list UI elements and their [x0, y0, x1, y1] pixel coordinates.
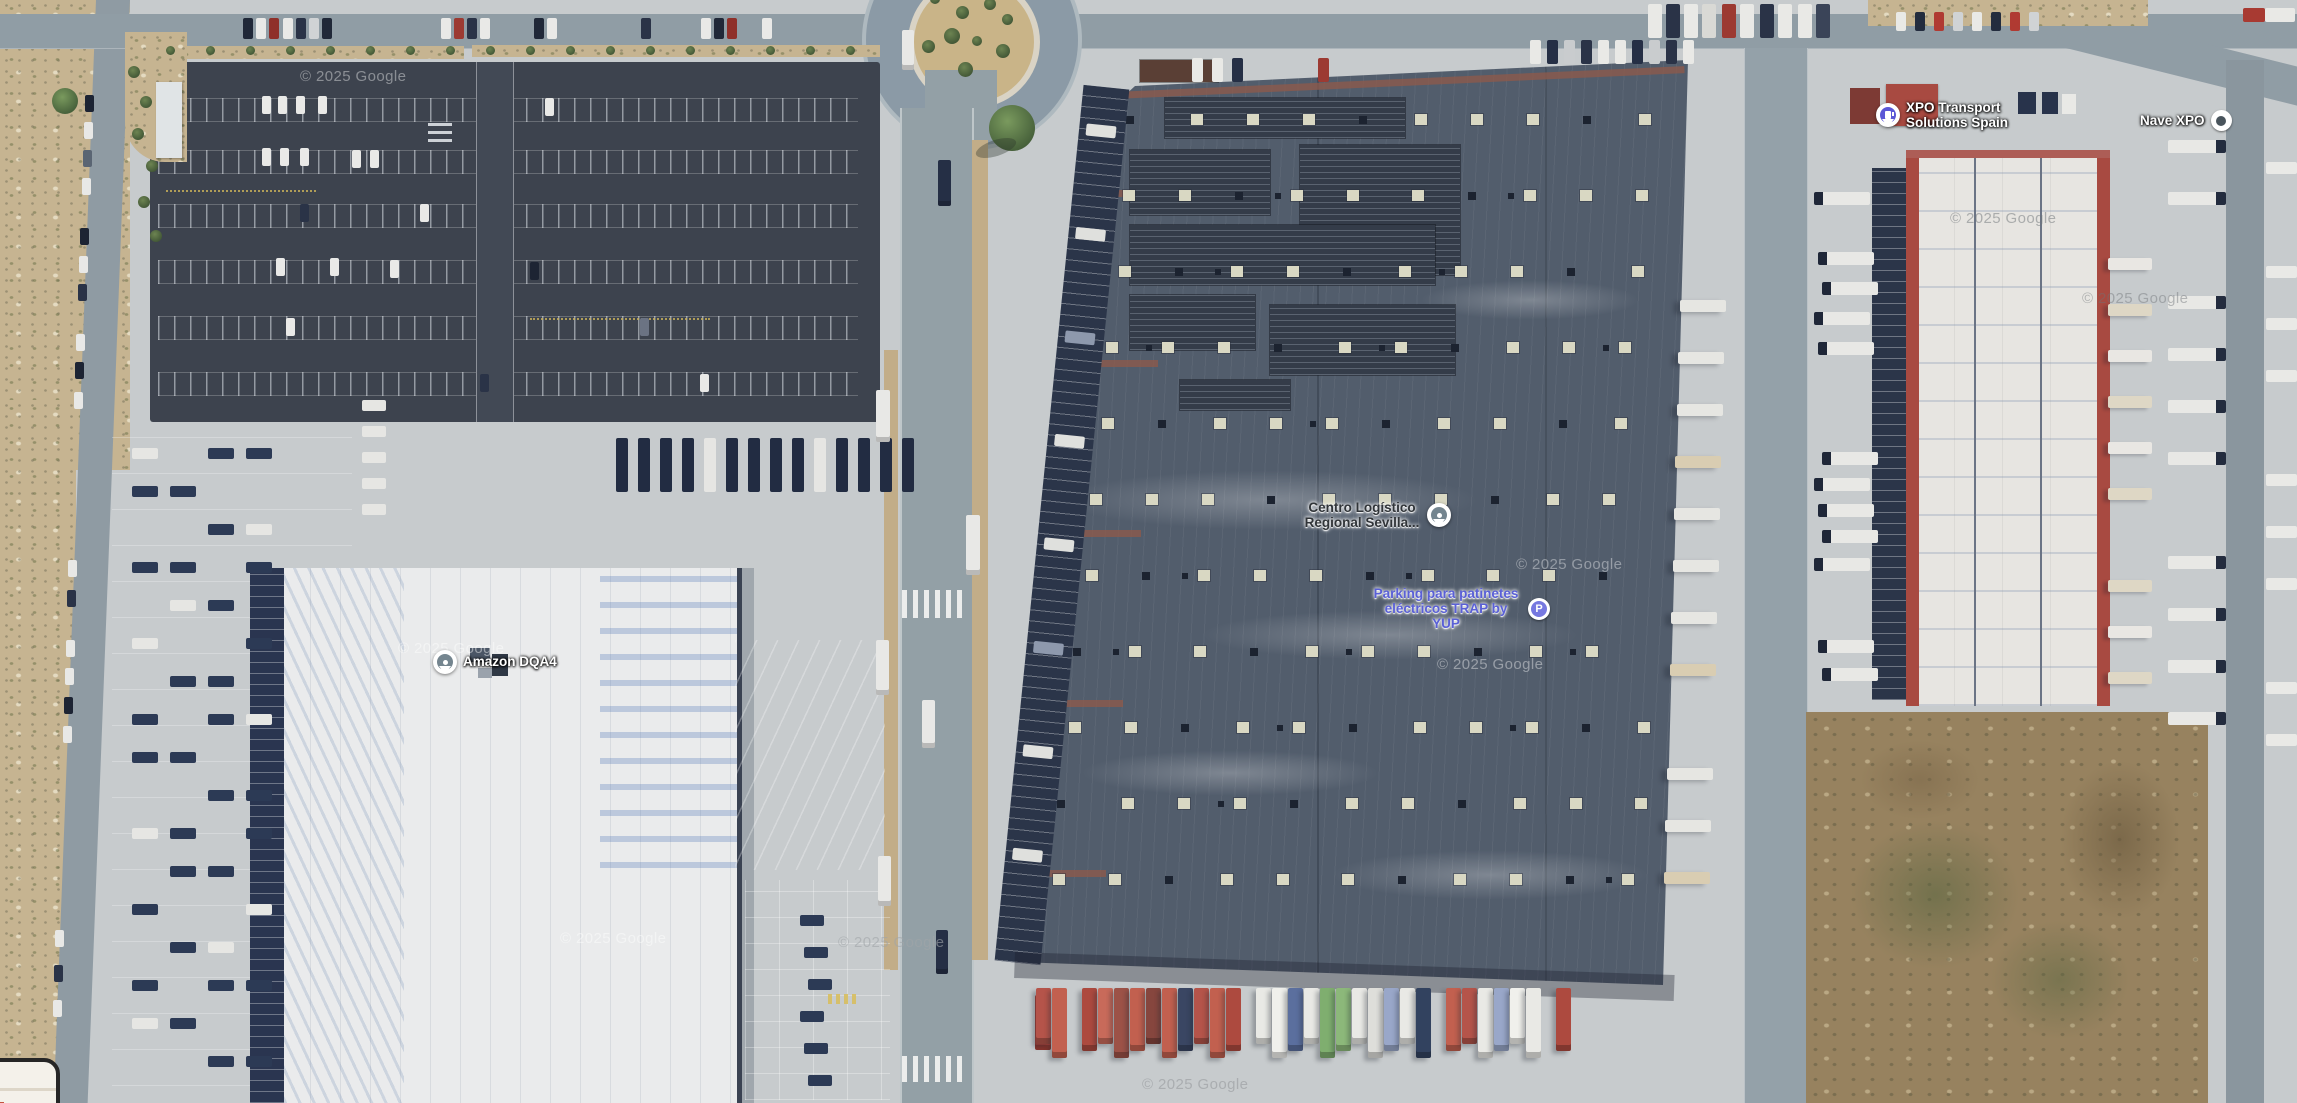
skylight: [1639, 114, 1651, 125]
delivery-van: [362, 478, 386, 489]
skylight: [1524, 190, 1536, 201]
roof-walkway: [1063, 700, 1123, 707]
skylight: [1146, 494, 1158, 505]
canopy-structure: [156, 82, 182, 158]
google-watermark: © 2025 Google: [560, 930, 666, 947]
roof-vent: [1057, 800, 1065, 808]
google-watermark: © 2025 Google: [300, 68, 406, 85]
minimap-inset-card[interactable]: [0, 1058, 60, 1103]
skylight: [1342, 874, 1354, 885]
docked-trailer: [1664, 872, 1710, 884]
truck: [2018, 92, 2036, 114]
parked-truck: [2168, 660, 2226, 673]
skylight: [1191, 114, 1203, 125]
docked-truck: [1818, 252, 1874, 265]
docked-trailer: [1012, 848, 1043, 863]
poi-xpo-transport[interactable]: XPO Transport Solutions Spain: [1876, 100, 2020, 130]
docked-truck: [638, 438, 650, 492]
skylight: [1326, 418, 1338, 429]
skylight: [1635, 798, 1647, 809]
skylight: [1362, 646, 1374, 657]
skylight: [1277, 874, 1289, 885]
roof-vent: [1559, 420, 1567, 428]
docked-trailer: [1670, 664, 1716, 676]
roof-vent: [1451, 344, 1459, 352]
yellow-dotted-line: [530, 318, 710, 320]
skylight: [1102, 418, 1114, 429]
parked-trailer: [1368, 988, 1383, 1058]
parked-trailer: [1114, 988, 1129, 1058]
skylight: [1487, 570, 1499, 581]
docked-truck: [858, 438, 870, 492]
parked-trailer: [1036, 988, 1051, 1044]
docked-truck: [1822, 452, 1878, 465]
docked-truck: [1814, 312, 1870, 325]
docked-trailer: [2108, 350, 2152, 362]
roof-vent: [1158, 420, 1166, 428]
roof-vent: [1218, 801, 1224, 807]
truck: [1035, 995, 1051, 1050]
soil-patch: [2060, 760, 2180, 920]
docked-truck: [660, 438, 672, 492]
skylight: [1438, 418, 1450, 429]
solar-array: [1130, 150, 1270, 215]
parked-trailer: [1352, 988, 1367, 1044]
docked-truck: [726, 438, 738, 492]
docked-truck: [704, 438, 716, 492]
roof-vent: [1235, 192, 1243, 200]
parked-truck: [2266, 474, 2297, 486]
roof-vent: [1458, 800, 1466, 808]
parked-truck: [2266, 266, 2297, 278]
parked-truck: [2266, 318, 2297, 330]
roof-stain: [1080, 750, 1380, 796]
dirt-verge: [152, 46, 464, 59]
skylight: [1069, 722, 1081, 733]
centro-logistico-pin-icon[interactable]: [1427, 503, 1451, 527]
truck: [2062, 94, 2076, 114]
docked-truck: [616, 438, 628, 492]
docked-truck: [770, 438, 782, 492]
docked-trailer: [1665, 820, 1711, 832]
docked-trailer: [1085, 123, 1116, 138]
roof-vent: [1267, 496, 1275, 504]
solar-array: [1180, 380, 1290, 410]
parked-trailer: [1304, 988, 1319, 1044]
roof-vent: [1566, 876, 1574, 884]
parking-lane-divider: [476, 62, 514, 422]
parked-trailer: [1194, 988, 1209, 1044]
roof-vent: [1343, 268, 1351, 276]
skylight: [1563, 342, 1575, 353]
parked-trailer: [1052, 988, 1067, 1058]
docked-trailer: [2108, 626, 2152, 638]
skylight: [1415, 114, 1427, 125]
parked-trailer: [1210, 988, 1225, 1058]
skylight: [1198, 570, 1210, 581]
skylight: [1511, 266, 1523, 277]
amazon-west-dock-band: [250, 568, 284, 1103]
roof-vent: [1366, 572, 1374, 580]
docked-trailer: [1680, 300, 1726, 312]
skylight: [1090, 494, 1102, 505]
docked-trailer: [1075, 227, 1106, 242]
skylight: [1622, 874, 1634, 885]
skylight: [1580, 190, 1592, 201]
docked-trailer: [1022, 744, 1053, 759]
skylight: [1347, 190, 1359, 201]
docked-truck: [814, 438, 826, 492]
poi-label: Parking para patinetes eléctricos TRAP b…: [1370, 586, 1522, 631]
parked-trailer: [1288, 988, 1303, 1051]
skylight: [1123, 190, 1135, 201]
skylight: [1527, 114, 1539, 125]
docked-trailer: [1043, 537, 1074, 552]
skylight: [1418, 646, 1430, 657]
parked-trailer: [1416, 988, 1431, 1058]
poi-label: Nave XPO: [2140, 113, 2205, 128]
docked-truck: [1818, 342, 1874, 355]
skylight: [1414, 722, 1426, 733]
docked-truck: [1814, 478, 1870, 491]
skylight: [1129, 646, 1141, 657]
skylight: [1339, 342, 1351, 353]
skylight: [1632, 266, 1644, 277]
roof-vent: [1570, 649, 1576, 655]
docked-trailer: [1064, 330, 1095, 345]
skylight: [1194, 646, 1206, 657]
skylight: [1306, 646, 1318, 657]
skylight: [1237, 722, 1249, 733]
roof-vent: [1346, 649, 1352, 655]
skylight: [1291, 190, 1303, 201]
docked-truck: [1822, 668, 1878, 681]
vacant-dirt-lot: [1806, 712, 2208, 1103]
poi-label: Centro Logístico Regional Sevilla...: [1303, 500, 1421, 530]
far-right-road: [2226, 60, 2264, 1103]
roof-vent: [1510, 725, 1516, 731]
docked-trailer: [1667, 768, 1713, 780]
yellow-crosswalk: [828, 994, 856, 1004]
roof-vent: [1349, 724, 1357, 732]
roof-seam: [1545, 58, 1547, 988]
parked-trailer: [1256, 988, 1271, 1044]
skylight: [1231, 266, 1243, 277]
skylight: [1202, 494, 1214, 505]
roof-walkway: [1081, 530, 1141, 537]
roof-vent: [1310, 421, 1316, 427]
roof-vent: [1277, 725, 1283, 731]
skylight: [1293, 722, 1305, 733]
skylight: [1619, 342, 1631, 353]
skylight: [1178, 798, 1190, 809]
yellow-dotted-line: [166, 190, 316, 192]
skylight: [1402, 798, 1414, 809]
docked-truck: [1814, 558, 1870, 571]
inset-detail: [0, 1088, 56, 1091]
docked-truck: [682, 438, 694, 492]
docked-trailer: [1033, 641, 1064, 656]
poi-nave-xpo[interactable]: Nave XPO: [2140, 110, 2232, 131]
diagonal-parking-stripes: [735, 640, 885, 870]
grass-verge: [1868, 0, 2148, 26]
xpo-west-dock: [1872, 168, 1906, 700]
parking-lot-area: [150, 62, 880, 422]
skylight: [1514, 798, 1526, 809]
google-watermark: © 2025 Google: [2082, 290, 2188, 307]
skylight: [1086, 570, 1098, 581]
parked-truck: [2168, 348, 2226, 361]
roof-vent: [1290, 800, 1298, 808]
roof-vent: [1599, 572, 1607, 580]
parked-trailer: [1336, 988, 1351, 1051]
skylight: [1303, 114, 1315, 125]
skylight: [1455, 266, 1467, 277]
roof-vent: [1146, 345, 1152, 351]
google-watermark: © 2025 Google: [1950, 210, 2056, 227]
roof-vent: [1165, 876, 1173, 884]
parked-trailer: [1510, 988, 1525, 1044]
solar-array: [1270, 305, 1455, 375]
skylight: [1494, 418, 1506, 429]
skylight: [1399, 266, 1411, 277]
skylight: [1270, 418, 1282, 429]
roof-vent: [1142, 572, 1150, 580]
roof-vent: [1182, 573, 1188, 579]
skylight: [1125, 722, 1137, 733]
skylight: [1510, 874, 1522, 885]
google-watermark: © 2025 Google: [1437, 656, 1543, 673]
docked-truck: [1822, 530, 1878, 543]
skylight: [1179, 190, 1191, 201]
skylight: [1106, 342, 1118, 353]
poi-amazon-dqa4[interactable]: Amazon DQA4: [433, 650, 557, 674]
parked-trailer: [1494, 988, 1509, 1051]
roof-slope-shading: [284, 568, 404, 1103]
delivery-van: [362, 504, 386, 515]
parked-trailer: [1082, 988, 1097, 1051]
skylight: [1221, 874, 1233, 885]
skylight: [1615, 418, 1627, 429]
poi-parking-patinetes[interactable]: Parking para patinetes eléctricos TRAP b…: [1370, 586, 1550, 631]
parked-truck: [2266, 162, 2297, 174]
roof-vent: [1175, 268, 1183, 276]
docked-trailer: [1677, 404, 1723, 416]
crosswalk: [428, 118, 452, 142]
roof-vent: [1439, 269, 1445, 275]
skylight: [1526, 722, 1538, 733]
parked-trailer: [1162, 988, 1177, 1058]
roof-panel-stripes: [600, 568, 737, 868]
xpo-transport-pin-icon[interactable]: [1876, 103, 1900, 127]
tree: [52, 88, 78, 114]
roof-vent: [1567, 268, 1575, 276]
roof-vent: [1274, 344, 1282, 352]
parking-icon[interactable]: P: [1528, 598, 1550, 620]
parked-truck: [2266, 682, 2297, 694]
parked-trailer: [1462, 988, 1477, 1044]
truck: [2042, 92, 2058, 114]
docked-trailer: [2108, 580, 2152, 592]
poi-label: Amazon DQA4: [463, 654, 557, 669]
docked-truck: [748, 438, 760, 492]
parked-trailer: [1226, 988, 1241, 1051]
google-watermark: © 2025 Google: [838, 934, 944, 951]
roof-vent: [1382, 420, 1390, 428]
parked-trailer: [1478, 988, 1493, 1058]
parked-trailer: [1320, 988, 1335, 1058]
skylight: [1586, 646, 1598, 657]
skylight: [1547, 494, 1559, 505]
docked-trailer: [2108, 488, 2152, 500]
parked-trailer: [1556, 988, 1571, 1051]
skylight: [1636, 190, 1648, 201]
map-canvas[interactable]: © 2025 Google © 2025 Google © 2025 Googl…: [0, 0, 2297, 1103]
parked-truck: [1232, 58, 1243, 82]
skylight: [1346, 798, 1358, 809]
skylight: [1603, 494, 1615, 505]
skylight: [1109, 874, 1121, 885]
roof-walkway: [1098, 360, 1158, 367]
container-row: [1140, 60, 1218, 82]
roof-seam: [2040, 158, 2042, 706]
roof-vent: [1126, 116, 1134, 124]
skylight: [1507, 342, 1519, 353]
roof-vent: [1603, 345, 1609, 351]
parked-trailer: [1098, 988, 1113, 1044]
poi-label: XPO Transport Solutions Spain: [1906, 100, 2020, 130]
roof-vent: [1215, 269, 1221, 275]
skylight: [1119, 266, 1131, 277]
google-watermark: © 2025 Google: [1142, 1076, 1248, 1093]
crosswalk: [902, 590, 968, 618]
docked-trailer: [1054, 434, 1085, 449]
parked-truck: [2266, 370, 2297, 382]
docked-trailer: [2108, 396, 2152, 408]
skylight: [1470, 722, 1482, 733]
roof-vent: [1398, 876, 1406, 884]
docked-trailer: [1673, 560, 1719, 572]
docked-trailer: [1675, 456, 1721, 468]
roof-vent: [1508, 193, 1514, 199]
vegetation-patch: [1850, 820, 2020, 970]
amazon-dqa4-pin-icon[interactable]: [433, 650, 457, 674]
bush: [138, 196, 150, 208]
skylight: [1254, 570, 1266, 581]
docked-trailer: [2108, 672, 2152, 684]
roof-vent: [1073, 648, 1081, 656]
parked-trailer: [1526, 988, 1541, 1058]
roof-vent: [1468, 192, 1476, 200]
skylight: [1218, 342, 1230, 353]
right-road: [1744, 48, 1808, 1103]
parked-truck: [2168, 140, 2226, 153]
xpo-red-stripe-east: [2097, 158, 2110, 706]
skylight: [1214, 418, 1226, 429]
docked-trailer: [2108, 258, 2152, 270]
solar-array: [1130, 225, 1435, 285]
skylight: [1570, 798, 1582, 809]
docked-trailer: [2108, 442, 2152, 454]
docked-truck: [1818, 640, 1874, 653]
docked-truck: [1822, 282, 1878, 295]
xpo-red-stripe-west: [1906, 158, 1919, 706]
delivery-van: [362, 452, 386, 463]
skylight: [1247, 114, 1259, 125]
parked-trailer: [1178, 988, 1193, 1051]
skylight: [1454, 874, 1466, 885]
parked-truck: [2266, 526, 2297, 538]
docked-truck: [792, 438, 804, 492]
skylight: [1412, 190, 1424, 201]
roof-vent: [1275, 193, 1281, 199]
parked-truck: [2168, 556, 2226, 569]
parked-trailer: [1400, 988, 1415, 1044]
parked-truck: [2168, 192, 2226, 205]
parked-trailer: [1384, 988, 1399, 1051]
soil-patch: [1860, 740, 1980, 820]
docked-trailer: [1678, 352, 1724, 364]
poi-centro-logistico[interactable]: Centro Logístico Regional Sevilla...: [1303, 500, 1451, 530]
docked-truck: [1814, 192, 1870, 205]
solar-array: [1130, 295, 1255, 350]
crosswalk: [902, 1056, 968, 1082]
docked-truck: [1818, 504, 1874, 517]
parked-truck: [2168, 400, 2226, 413]
docked-trailer: [1674, 508, 1720, 520]
roof-vent: [1582, 724, 1590, 732]
roof-vent: [1474, 648, 1482, 656]
roof-vent: [1113, 649, 1119, 655]
roof-vent: [1406, 573, 1412, 579]
roof-vent: [1250, 648, 1258, 656]
skylight: [1310, 570, 1322, 581]
skylight: [1234, 798, 1246, 809]
roof-vent: [1583, 116, 1591, 124]
skylight: [1422, 570, 1434, 581]
nave-xpo-pin-icon[interactable]: [2211, 110, 2232, 131]
parked-trailer: [1146, 988, 1161, 1044]
roof-vent: [1491, 496, 1499, 504]
roof-vent: [1379, 345, 1385, 351]
parked-trailer: [1272, 988, 1287, 1058]
skylight: [1162, 342, 1174, 353]
roof-vent: [1606, 877, 1612, 883]
skylight: [1122, 798, 1134, 809]
dirt-verge: [472, 45, 880, 57]
roof-seam: [1974, 158, 1976, 706]
vegetation-patch: [1990, 920, 2130, 1040]
roof-vent: [1359, 116, 1367, 124]
roof-stain: [1330, 850, 1650, 900]
road-shoulder-dirt: [884, 350, 898, 970]
parked-truck: [2266, 578, 2297, 590]
parked-truck: [2168, 452, 2226, 465]
road-shoulder-dirt: [972, 140, 988, 960]
skylight: [1638, 722, 1650, 733]
skylight: [1287, 266, 1299, 277]
xpo-warehouse-roof: [1906, 158, 2110, 706]
east-yard-parking-grid: [745, 880, 890, 1100]
docked-truck: [836, 438, 848, 492]
parked-trailer: [1130, 988, 1145, 1051]
roof-vent: [1181, 724, 1189, 732]
skylight: [1471, 114, 1483, 125]
parked-truck: [2168, 608, 2226, 621]
parked-truck: [2266, 734, 2297, 746]
docked-trailer: [1671, 612, 1717, 624]
parked-trailer: [1446, 988, 1461, 1051]
